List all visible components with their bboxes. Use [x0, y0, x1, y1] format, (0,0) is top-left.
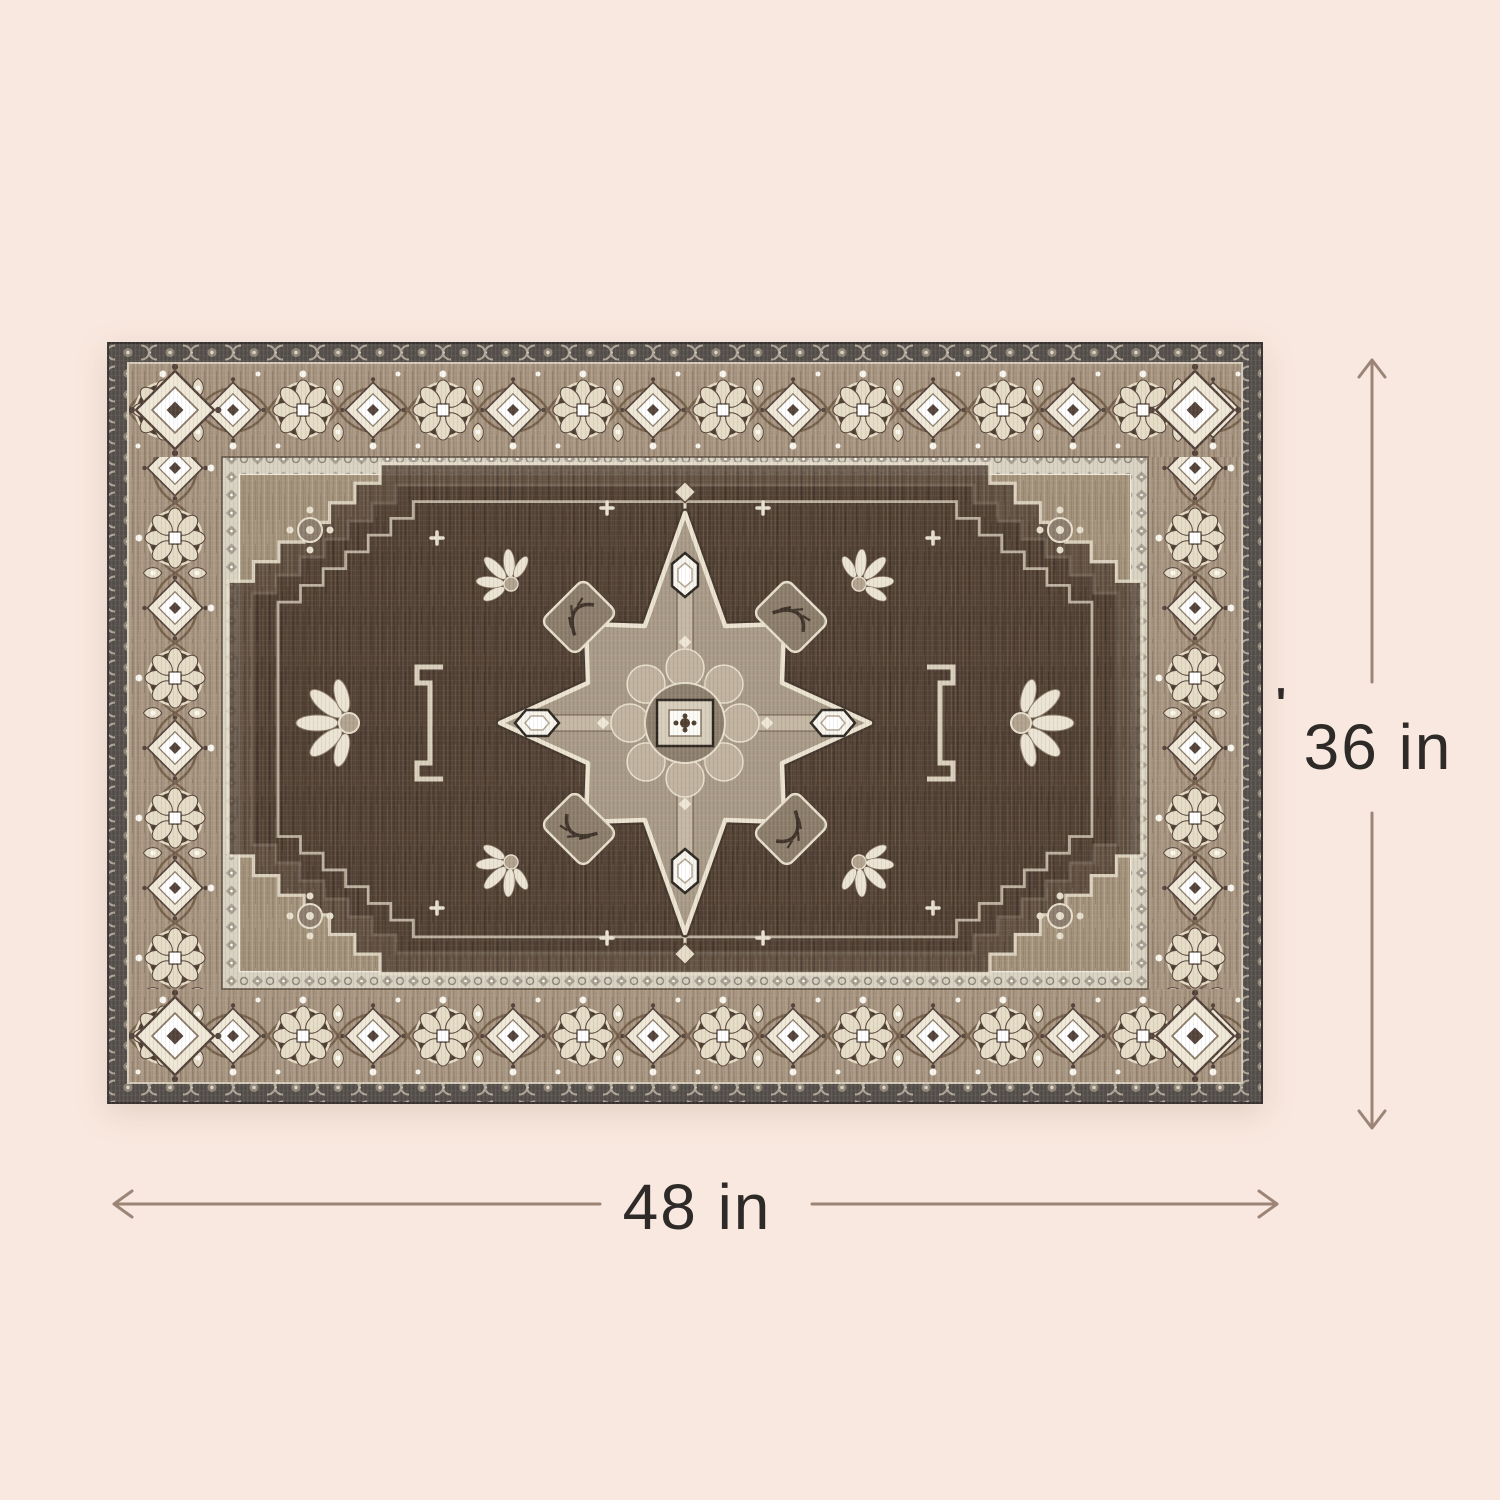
stray-apostrophe-mark: ' [1276, 679, 1286, 729]
height-dimension-label: 36 in [1304, 710, 1453, 784]
rug-image [107, 342, 1263, 1104]
rug-texture-overlay [107, 342, 1263, 1104]
product-image-canvas: 36 in 48 in ' [0, 0, 1500, 1500]
width-dimension-label: 48 in [623, 1170, 772, 1244]
